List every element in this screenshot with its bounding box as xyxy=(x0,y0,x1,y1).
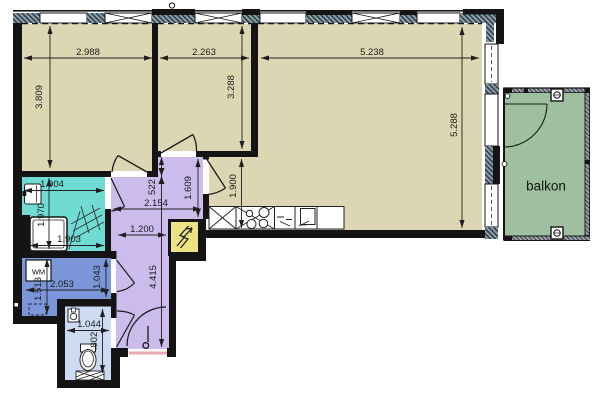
svg-text:5.288: 5.288 xyxy=(449,113,460,137)
svg-text:2.053: 2.053 xyxy=(50,279,74,290)
svg-text:1.513: 1.513 xyxy=(33,277,44,301)
svg-text:1.200: 1.200 xyxy=(130,224,154,235)
svg-text:2.988: 2.988 xyxy=(76,47,100,58)
svg-text:522: 522 xyxy=(147,179,158,195)
svg-text:2.154: 2.154 xyxy=(144,198,168,209)
svg-text:1.609: 1.609 xyxy=(183,176,194,200)
svg-text:WM: WM xyxy=(32,268,45,277)
svg-text:.802: .802 xyxy=(89,332,100,351)
svg-text:1.043: 1.043 xyxy=(92,265,103,289)
svg-text:1.970: 1.970 xyxy=(36,203,47,227)
svg-text:1.904: 1.904 xyxy=(40,179,64,190)
svg-text:3.809: 3.809 xyxy=(34,85,45,109)
svg-text:5.238: 5.238 xyxy=(360,47,384,58)
svg-text:4.415: 4.415 xyxy=(148,265,159,289)
svg-text:2.263: 2.263 xyxy=(192,47,216,58)
svg-text:1.044: 1.044 xyxy=(77,319,101,330)
svg-text:balkon: balkon xyxy=(526,179,566,194)
svg-text:1.900: 1.900 xyxy=(228,174,239,198)
svg-text:1.903: 1.903 xyxy=(57,234,81,245)
svg-text:3.288: 3.288 xyxy=(226,75,237,99)
